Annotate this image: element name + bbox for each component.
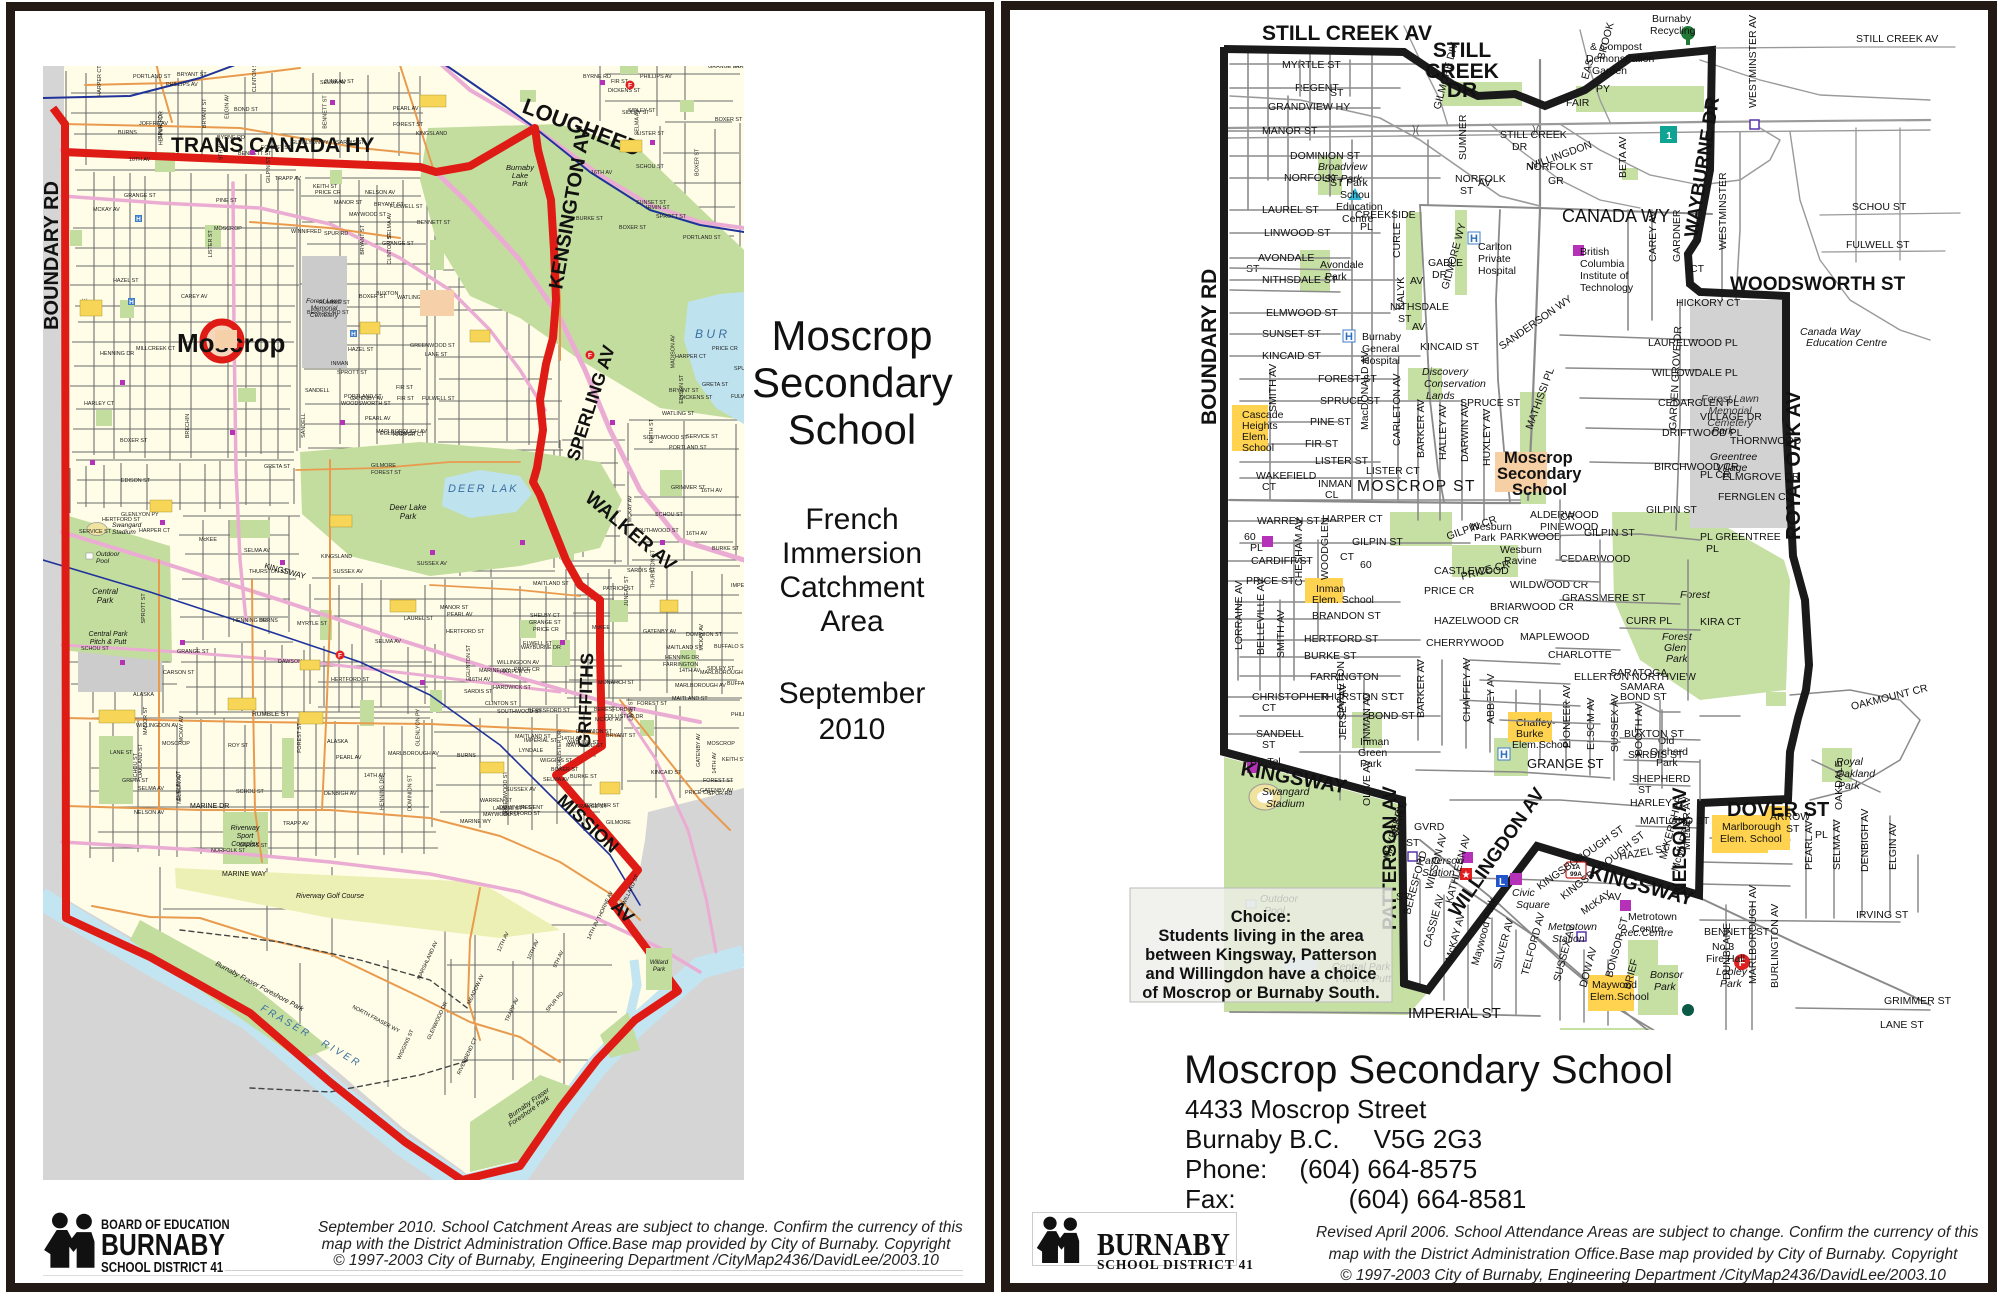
svg-text:Elem.School: Elem.School: [1590, 991, 1649, 1003]
svg-text:BENNETT ST: BENNETT ST: [322, 95, 328, 129]
svg-text:SANDELL: SANDELL: [305, 388, 330, 394]
svg-text:BRECHIN: BRECHIN: [185, 414, 191, 438]
svg-text:BRANDON ST: BRANDON ST: [1312, 610, 1381, 622]
svg-text:and Willingdon have a choice: and Willingdon have a choice: [1146, 965, 1377, 983]
svg-text:OAKLAND ST: OAKLAND ST: [138, 743, 144, 778]
svg-text:SARDIS ST: SARDIS ST: [336, 140, 365, 146]
svg-text:GRANGE ST: GRANGE ST: [529, 620, 561, 626]
svg-text:ELGIN AV: ELGIN AV: [1887, 823, 1899, 870]
svg-text:MAYWOOD ST: MAYWOOD ST: [566, 743, 604, 749]
svg-text:BYRNE RD: BYRNE RD: [583, 74, 611, 80]
svg-text:GRANGE ST: GRANGE ST: [124, 193, 156, 199]
svg-text:SCHOU ST: SCHOU ST: [655, 512, 684, 518]
svg-text:Elem. School: Elem. School: [1720, 833, 1782, 845]
svg-text:DARWIN AV: DARWIN AV: [1459, 404, 1471, 462]
svg-text:SUSSEX AV: SUSSEX AV: [417, 561, 447, 567]
svg-text:SUSSEX AV: SUSSEX AV: [333, 569, 363, 575]
svg-text:EGLINTON ST: EGLINTON ST: [466, 644, 472, 681]
svg-text:Education Centre: Education Centre: [1806, 337, 1887, 349]
svg-text:WATLING ST: WATLING ST: [662, 411, 695, 417]
svg-text:FIR ST: FIR ST: [1305, 438, 1339, 450]
svg-text:LAUREL ST: LAUREL ST: [404, 616, 434, 622]
svg-text:Lands: Lands: [1426, 390, 1455, 402]
svg-text:PRICE CR: PRICE CR: [712, 346, 738, 352]
svg-text:Willard: Willard: [650, 960, 669, 966]
svg-text:)(: )(: [1412, 124, 1420, 136]
svg-text:PEARL AV: PEARL AV: [393, 106, 419, 112]
svg-text:LORRAINE AV: LORRAINE AV: [1233, 581, 1245, 650]
svg-text:DOMINION ST: DOMINION ST: [576, 729, 613, 735]
svg-text:SCHOU ST: SCHOU ST: [636, 164, 665, 170]
svg-text:IMPERIAL ST: IMPERIAL ST: [731, 583, 744, 589]
svg-text:ROYAL OAK AV: ROYAL OAK AV: [1783, 390, 1805, 540]
svg-text:KEITH ST: KEITH ST: [649, 418, 655, 443]
svg-text:1: 1: [1666, 131, 1672, 142]
svg-text:IMPERIAL ST: IMPERIAL ST: [1408, 1005, 1501, 1022]
svg-text:BOXER ST: BOXER ST: [120, 438, 148, 444]
svg-text:BUFFALO ST: BUFFALO ST: [727, 681, 744, 687]
svg-text:LISTER ST: LISTER ST: [1315, 455, 1369, 467]
svg-text:BURKE ST: BURKE ST: [712, 546, 740, 552]
svg-text:CARLETON AV: CARLETON AV: [1391, 373, 1403, 446]
svg-text:PHILLIPS AV: PHILLIPS AV: [731, 712, 744, 718]
svg-text:ST: ST: [1330, 87, 1344, 99]
svg-text:HARPER CT: HARPER CT: [1322, 513, 1383, 525]
svg-text:INMAN AV: INMAN AV: [1361, 693, 1373, 742]
svg-text:GREENWOOD ST: GREENWOOD ST: [410, 343, 456, 349]
svg-text:ST: ST: [1460, 185, 1474, 197]
svg-text:CAREY AV: CAREY AV: [1647, 210, 1659, 262]
svg-text:Conservation: Conservation: [1424, 378, 1486, 390]
svg-text:WINNIFRED: WINNIFRED: [291, 229, 322, 235]
svg-text:Central Park: Central Park: [89, 631, 128, 638]
svg-text:PY: PY: [1596, 83, 1610, 95]
svg-text:SPUR RD: SPUR RD: [734, 366, 744, 372]
svg-text:Riverway Golf Course: Riverway Golf Course: [296, 893, 364, 900]
svg-text:Discovery: Discovery: [1422, 366, 1469, 378]
svg-text:JUNEAU ST: JUNEAU ST: [324, 79, 355, 85]
svg-text:SMITH AV: SMITH AV: [1267, 364, 1279, 412]
svg-text:NORFOLK ST: NORFOLK ST: [1526, 161, 1594, 173]
svg-text:HENNING DR: HENNING DR: [233, 618, 267, 624]
svg-text:MYRTLE ST: MYRTLE ST: [297, 621, 328, 627]
svg-text:ALASKA: ALASKA: [327, 739, 348, 745]
svg-text:BRYANT ST: BRYANT ST: [202, 98, 208, 128]
svg-text:PL GREENTREE: PL GREENTREE: [1700, 531, 1781, 543]
svg-text:SPROTT ST: SPROTT ST: [656, 214, 687, 220]
svg-text:Metrotown: Metrotown: [1628, 911, 1677, 923]
svg-text:JUNEAU ST: JUNEAU ST: [624, 575, 630, 606]
svg-text:GLENLYON PY: GLENLYON PY: [291, 140, 329, 146]
svg-text:PRICE CR: PRICE CR: [685, 790, 711, 796]
svg-text:NORFOLK ST: NORFOLK ST: [211, 848, 246, 854]
svg-text:SPROTT ST: SPROTT ST: [141, 593, 147, 624]
svg-text:Broadview: Broadview: [1318, 161, 1368, 173]
svg-text:WAYBURNE DR: WAYBURNE DR: [521, 645, 561, 651]
svg-text:CEDARGLEN PL: CEDARGLEN PL: [1658, 397, 1739, 409]
svg-text:HICKORY CT: HICKORY CT: [1676, 297, 1741, 309]
svg-text:ROY ST: ROY ST: [228, 743, 249, 749]
svg-text:MARINE WAY: MARINE WAY: [222, 871, 267, 878]
svg-text:TRAPP AV: TRAPP AV: [275, 176, 301, 182]
svg-text:NELSON AV: NELSON AV: [134, 810, 165, 816]
svg-text:MARLBOROUGH AV: MARLBOROUGH AV: [388, 751, 439, 757]
svg-text:IRMIN ST: IRMIN ST: [646, 205, 670, 211]
svg-text:DOMINION ST: DOMINION ST: [407, 774, 413, 811]
svg-text:FULWELL ST: FULWELL ST: [390, 204, 423, 210]
svg-text:MAITLAND ST: MAITLAND ST: [672, 696, 708, 702]
svg-text:SUMNER: SUMNER: [1457, 114, 1469, 160]
svg-text:H: H: [351, 331, 356, 338]
svg-text:KIRA CT: KIRA CT: [1700, 616, 1741, 628]
svg-text:MANOR ST: MANOR ST: [334, 200, 363, 206]
svg-text:NELSON AV: NELSON AV: [365, 190, 396, 196]
svg-text:SCHOU ST: SCHOU ST: [236, 789, 265, 795]
svg-text:SIDLEY ST: SIDLEY ST: [707, 666, 735, 672]
svg-text:HENNING DR: HENNING DR: [158, 111, 164, 145]
svg-text:RUMBLE ST: RUMBLE ST: [319, 300, 351, 306]
svg-text:B U R: B U R: [695, 327, 727, 341]
svg-text:BOXER ST: BOXER ST: [619, 225, 647, 231]
svg-text:CARSON ST: CARSON ST: [163, 670, 195, 676]
svg-text:STILL CREEK AV: STILL CREEK AV: [1856, 33, 1938, 45]
svg-text:ELGIN AV: ELGIN AV: [225, 94, 231, 119]
svg-text:THURSTON ST: THURSTON ST: [249, 569, 288, 575]
svg-text:of Moscrop or Burnaby South.: of Moscrop or Burnaby South.: [1142, 984, 1379, 1002]
svg-text:WOODGLEN: WOODGLEN: [1319, 518, 1331, 580]
svg-text:BURNS: BURNS: [457, 753, 476, 759]
svg-text:BENNETT ST: BENNETT ST: [1704, 926, 1770, 938]
svg-text:ST: ST: [1786, 823, 1800, 835]
svg-text:MAYWOOD ST: MAYWOOD ST: [349, 212, 387, 218]
svg-text:FULWELL ST: FULWELL ST: [731, 394, 744, 400]
svg-text:PL: PL: [1706, 543, 1719, 555]
svg-text:PHILLIPS AV: PHILLIPS AV: [640, 74, 672, 80]
svg-text:LAURELWOOD PL: LAURELWOOD PL: [1648, 337, 1738, 349]
svg-text:PRICE CR: PRICE CR: [1424, 585, 1475, 597]
svg-text:GILMORE: GILMORE: [606, 820, 631, 826]
svg-text:Stadium: Stadium: [1266, 798, 1305, 810]
svg-text:PEARL AV: PEARL AV: [365, 416, 391, 422]
svg-text:FARRINGTON: FARRINGTON: [733, 66, 744, 70]
svg-text:FIR ST: FIR ST: [396, 385, 414, 391]
svg-text:EDISON ST: EDISON ST: [121, 478, 151, 484]
svg-text:McKEE: McKEE: [199, 537, 217, 543]
svg-text:CR: CR: [1560, 511, 1576, 523]
svg-text:BETA AV: BETA AV: [1617, 136, 1629, 178]
svg-text:HERTFORD ST: HERTFORD ST: [331, 677, 370, 683]
svg-text:ST: ST: [1406, 837, 1420, 849]
svg-text:MCKAY AV: MCKAY AV: [628, 495, 634, 522]
svg-text:Education: Education: [1336, 201, 1383, 213]
svg-text:CLINTON ST: CLINTON ST: [485, 701, 518, 707]
svg-text:CHAFFEY AV: CHAFFEY AV: [1461, 658, 1473, 722]
svg-text:ALASKA: ALASKA: [133, 692, 154, 698]
svg-text:H: H: [129, 299, 134, 306]
svg-text:Square: Square: [1516, 899, 1550, 911]
svg-text:GILMORE: GILMORE: [371, 463, 396, 469]
svg-text:SERVICE ST: SERVICE ST: [79, 529, 112, 535]
svg-text:MOSCROP ST: MOSCROP ST: [1357, 478, 1476, 495]
svg-text:WILLINGDON AV: WILLINGDON AV: [136, 723, 179, 729]
svg-text:MANOR ST: MANOR ST: [1262, 125, 1318, 137]
svg-text:SPUR RD: SPUR RD: [324, 231, 348, 237]
svg-text:DEER LAK: DEER LAK: [448, 483, 518, 495]
svg-text:MANOR ST: MANOR ST: [143, 706, 149, 735]
svg-text:MARINE WY: MARINE WY: [460, 819, 492, 825]
svg-text:School: School: [1242, 442, 1274, 454]
svg-text:16TH AV: 16TH AV: [469, 677, 491, 683]
svg-text:10TH AV: 10TH AV: [129, 157, 151, 163]
svg-text:DENBIGH AV: DENBIGH AV: [1859, 809, 1871, 872]
svg-text:Technology: Technology: [1580, 282, 1634, 294]
svg-text:BUFFALO ST: BUFFALO ST: [714, 644, 744, 650]
svg-text:BOXER ST: BOXER ST: [695, 148, 701, 176]
svg-text:GREENWOOD ST: GREENWOOD ST: [503, 771, 509, 817]
svg-text:LAUREL ST: LAUREL ST: [1262, 204, 1319, 216]
svg-text:CAREY AV: CAREY AV: [181, 294, 208, 300]
svg-text:PL: PL: [1815, 829, 1828, 841]
svg-text:BENNETT ST: BENNETT ST: [417, 220, 451, 226]
svg-text:H: H: [1500, 749, 1508, 761]
svg-text:COLLISTER DR: COLLISTER DR: [604, 714, 643, 720]
svg-text:PRICE CR: PRICE CR: [315, 190, 341, 196]
svg-text:GILPIN ST: GILPIN ST: [1352, 536, 1403, 548]
svg-text:AVONDALE: AVONDALE: [1258, 252, 1314, 264]
svg-text:REGENT: REGENT: [521, 805, 544, 811]
svg-text:MOSCROP: MOSCROP: [214, 226, 242, 232]
svg-text:Sport: Sport: [237, 833, 255, 840]
svg-text:Forest: Forest: [1680, 589, 1711, 601]
svg-text:CT: CT: [1390, 691, 1405, 703]
svg-text:14TH AV: 14TH AV: [561, 736, 583, 742]
svg-text:NITHSDALE ST: NITHSDALE ST: [1262, 274, 1338, 286]
svg-text:HAZEL ST: HAZEL ST: [348, 347, 374, 353]
svg-text:PORTLAND ST: PORTLAND ST: [669, 445, 707, 451]
svg-text:MYRTLE ST: MYRTLE ST: [1282, 59, 1341, 71]
svg-text:Swangard: Swangard: [112, 522, 142, 529]
svg-text:HERTFORD ST: HERTFORD ST: [446, 629, 485, 635]
svg-text:AV: AV: [1410, 275, 1423, 287]
svg-text:PL CR: PL CR: [1700, 469, 1731, 481]
svg-text:SELMA AV: SELMA AV: [138, 786, 164, 792]
svg-text:PINE ST: PINE ST: [1310, 416, 1351, 428]
svg-text:LYNDALE: LYNDALE: [519, 748, 544, 754]
svg-text:CURLE: CURLE: [1391, 222, 1403, 258]
svg-text:Pool: Pool: [96, 558, 110, 565]
svg-text:GRIMMER ST: GRIMMER ST: [585, 803, 620, 809]
svg-text:HENNING DR: HENNING DR: [100, 351, 134, 357]
svg-text:MARINE DR: MARINE DR: [190, 803, 229, 810]
svg-text:BURKE ST: BURKE ST: [570, 774, 598, 780]
svg-text:F: F: [588, 353, 592, 360]
svg-text:CT: CT: [1340, 551, 1355, 563]
svg-text:HUXLEY AV: HUXLEY AV: [1481, 409, 1493, 466]
svg-text:Burnaby: Burnaby: [1652, 13, 1692, 25]
svg-text:PRICE CR: PRICE CR: [533, 627, 559, 633]
svg-text:TRAPP AV: TRAPP AV: [283, 821, 309, 827]
svg-text:16TH AV: 16TH AV: [686, 531, 708, 537]
svg-text:CLINTON ST: CLINTON ST: [252, 66, 258, 92]
svg-text:CLINTON ST: CLINTON ST: [387, 232, 393, 265]
svg-text:OAKDALE: OAKDALE: [1833, 760, 1845, 810]
svg-text:MacDONALD AV: MacDONALD AV: [1359, 351, 1371, 430]
svg-text:Park: Park: [1666, 653, 1688, 665]
svg-text:MCKAY AV: MCKAY AV: [93, 207, 120, 213]
svg-text:THURSTON ST: THURSTON ST: [651, 549, 657, 588]
svg-text:MONARCH ST: MONARCH ST: [598, 680, 635, 686]
svg-text:ST: ST: [1396, 891, 1410, 903]
svg-text:PEARL AV: PEARL AV: [447, 612, 473, 618]
svg-text:WOODSWORTH ST: WOODSWORTH ST: [1730, 274, 1906, 295]
svg-text:BOXER ST: BOXER ST: [551, 767, 579, 773]
svg-text:MARINE WY: MARINE WY: [479, 668, 511, 674]
svg-text:HENNING DR: HENNING DR: [379, 776, 385, 810]
svg-text:OLIVE AV: OLIVE AV: [1361, 760, 1373, 807]
svg-text:Columbia: Columbia: [1580, 258, 1625, 270]
svg-text:GATENBY AV: GATENBY AV: [696, 733, 702, 767]
svg-text:Private: Private: [1478, 253, 1511, 265]
svg-text:HARPER CT: HARPER CT: [97, 66, 103, 97]
svg-text:SARATOGA: SARATOGA: [1610, 667, 1667, 679]
svg-text:LANE ST: LANE ST: [1880, 1019, 1924, 1030]
svg-text:STILL: STILL: [1433, 39, 1491, 62]
svg-text:HAZEL ST: HAZEL ST: [113, 278, 139, 284]
svg-text:CT: CT: [1690, 263, 1705, 275]
svg-text:SCHOU ST: SCHOU ST: [81, 646, 110, 652]
svg-text:Recycling: Recycling: [1650, 25, 1696, 37]
svg-text:MANOR ST: MANOR ST: [440, 605, 469, 611]
svg-text:Outdoor: Outdoor: [96, 551, 120, 558]
svg-text:Civic: Civic: [1512, 887, 1535, 899]
svg-text:16TH AV: 16TH AV: [701, 488, 723, 494]
svg-text:WILLINGDON AV: WILLINGDON AV: [497, 660, 540, 666]
svg-text:BURKE ST: BURKE ST: [576, 216, 604, 222]
svg-text:GILPIN ST: GILPIN ST: [266, 156, 272, 183]
svg-text:EAS: EAS: [1579, 57, 1596, 80]
svg-text:Riverway: Riverway: [231, 825, 260, 832]
svg-text:DAWSON: DAWSON: [278, 659, 302, 665]
svg-text:FULWELL ST: FULWELL ST: [422, 396, 455, 402]
svg-text:FIR ST: FIR ST: [397, 396, 415, 402]
svg-text:PL: PL: [1250, 542, 1263, 554]
svg-text:BRYANT ST: BRYANT ST: [177, 72, 207, 78]
svg-text:GRANGE ST: GRANGE ST: [1527, 756, 1604, 771]
svg-text:SMITH AV: SMITH AV: [1275, 610, 1287, 658]
svg-text:LANE ST: LANE ST: [425, 352, 448, 358]
svg-text:FAIR: FAIR: [1566, 97, 1590, 109]
svg-text:14TH AV: 14TH AV: [712, 752, 718, 774]
svg-text:CHERRYWOOD: CHERRYWOOD: [1426, 637, 1504, 649]
svg-text:HENNING DR: HENNING DR: [665, 655, 699, 661]
svg-text:MCKAY AV: MCKAY AV: [179, 715, 185, 742]
svg-text:SELMA AV: SELMA AV: [1831, 819, 1843, 870]
svg-text:CASSIE AV: CASSIE AV: [1421, 893, 1447, 948]
svg-text:HARDWICK ST: HARDWICK ST: [493, 685, 531, 691]
svg-text:SCHOU ST: SCHOU ST: [1852, 201, 1907, 213]
svg-text:HAZELWOOD CR: HAZELWOOD CR: [1434, 615, 1519, 627]
svg-text:DR: DR: [1512, 141, 1528, 153]
svg-text:FOREST ST: FOREST ST: [637, 701, 668, 707]
svg-text:14TH AV: 14TH AV: [679, 668, 701, 674]
svg-text:CARLETON: CARLETON: [1335, 661, 1347, 718]
svg-text:CHESHAM AV: CHESHAM AV: [1293, 518, 1305, 586]
svg-text:KEITH ST: KEITH ST: [313, 184, 338, 190]
svg-text:ST: ST: [1398, 313, 1412, 325]
svg-text:CHARLOTTE: CHARLOTTE: [1548, 649, 1612, 661]
svg-text:PRICE ST: PRICE ST: [1246, 575, 1295, 587]
svg-text:NORFOLK: NORFOLK: [1455, 173, 1506, 185]
svg-text:Hospital: Hospital: [1478, 265, 1516, 277]
svg-text:School: School: [1512, 481, 1567, 499]
svg-text:INMAN: INMAN: [331, 361, 348, 367]
svg-text:ST: ST: [1638, 784, 1652, 796]
svg-text:SOUTHWOOD ST: SOUTHWOOD ST: [634, 528, 679, 534]
svg-text:HARPER CT: HARPER CT: [675, 354, 707, 360]
svg-text:OAKMOUNT CR: OAKMOUNT CR: [1850, 682, 1930, 713]
svg-text:H: H: [136, 216, 141, 223]
svg-text:SPROTT ST: SPROTT ST: [337, 370, 368, 376]
svg-text:GVRD: GVRD: [1414, 821, 1445, 833]
svg-text:LISTER ST: LISTER ST: [637, 131, 665, 137]
svg-text:14TH AV: 14TH AV: [364, 773, 386, 779]
svg-text:F: F: [628, 83, 632, 90]
svg-text:Central: Central: [92, 587, 118, 596]
svg-text:Pitch & Putt: Pitch & Putt: [90, 639, 128, 646]
svg-text:16TH AV: 16TH AV: [591, 170, 613, 176]
svg-text:IMPERIAL ST: IMPERIAL ST: [524, 738, 558, 744]
svg-text:BERESFORD ST: BERESFORD ST: [307, 310, 350, 316]
svg-text:FOREST ST: FOREST ST: [393, 122, 424, 128]
svg-text:STILL CREEK: STILL CREEK: [1500, 129, 1567, 141]
svg-text:GILPIN ST: GILPIN ST: [1646, 504, 1697, 516]
svg-text:AV: AV: [1412, 321, 1425, 333]
svg-text:Students living in the area: Students living in the area: [1158, 927, 1364, 945]
svg-text:STILL CREEK AV: STILL CREEK AV: [1262, 22, 1432, 45]
svg-text:MCKAY AV: MCKAY AV: [699, 624, 705, 651]
svg-text:WIGGINS ST: WIGGINS ST: [540, 758, 573, 764]
svg-text:McKEE: McKEE: [592, 625, 610, 631]
svg-text:BURKE ST: BURKE ST: [1304, 650, 1357, 662]
svg-text:WESTMINSTER: WESTMINSTER: [1717, 172, 1729, 250]
svg-text:AV: AV: [1608, 891, 1621, 903]
svg-text:GRANGE ST: GRANGE ST: [177, 649, 209, 655]
svg-text:VILLAGE DR: VILLAGE DR: [1700, 411, 1762, 423]
svg-text:BOUNDARY RD: BOUNDARY RD: [43, 181, 63, 330]
svg-text:SUNSET ST: SUNSET ST: [1262, 328, 1321, 340]
svg-text:SELMA AV: SELMA AV: [543, 777, 569, 783]
svg-text:GLENLYON PY: GLENLYON PY: [416, 708, 422, 746]
svg-text:Park: Park: [512, 179, 529, 188]
svg-text:ST: ST: [1262, 739, 1276, 751]
svg-text:MAPLEWOOD: MAPLEWOOD: [1520, 631, 1590, 643]
svg-text:DRIFTWOOD PL: DRIFTWOOD PL: [1662, 427, 1743, 439]
svg-text:SANDELL: SANDELL: [301, 413, 307, 438]
svg-text:Park: Park: [1654, 981, 1676, 993]
svg-text:Park: Park: [400, 512, 417, 521]
svg-text:GARDNER: GARDNER: [1671, 209, 1683, 262]
svg-text:H: H: [1470, 233, 1478, 245]
svg-text:GRANDVIEW HY: GRANDVIEW HY: [1268, 101, 1350, 113]
svg-text:FULWELL ST: FULWELL ST: [1846, 239, 1910, 251]
svg-text:SILVER AV: SILVER AV: [1491, 917, 1516, 970]
svg-text:ELMWOOD ST: ELMWOOD ST: [1266, 307, 1338, 319]
svg-text:Institute of: Institute of: [1580, 270, 1629, 282]
svg-text:CT: CT: [1262, 702, 1277, 714]
svg-text:WESTMINSTER AV: WESTMINSTER AV: [1747, 15, 1759, 108]
svg-text:GATENBY AV: GATENBY AV: [643, 629, 677, 635]
svg-text:BENNETT ST: BENNETT ST: [238, 151, 272, 157]
